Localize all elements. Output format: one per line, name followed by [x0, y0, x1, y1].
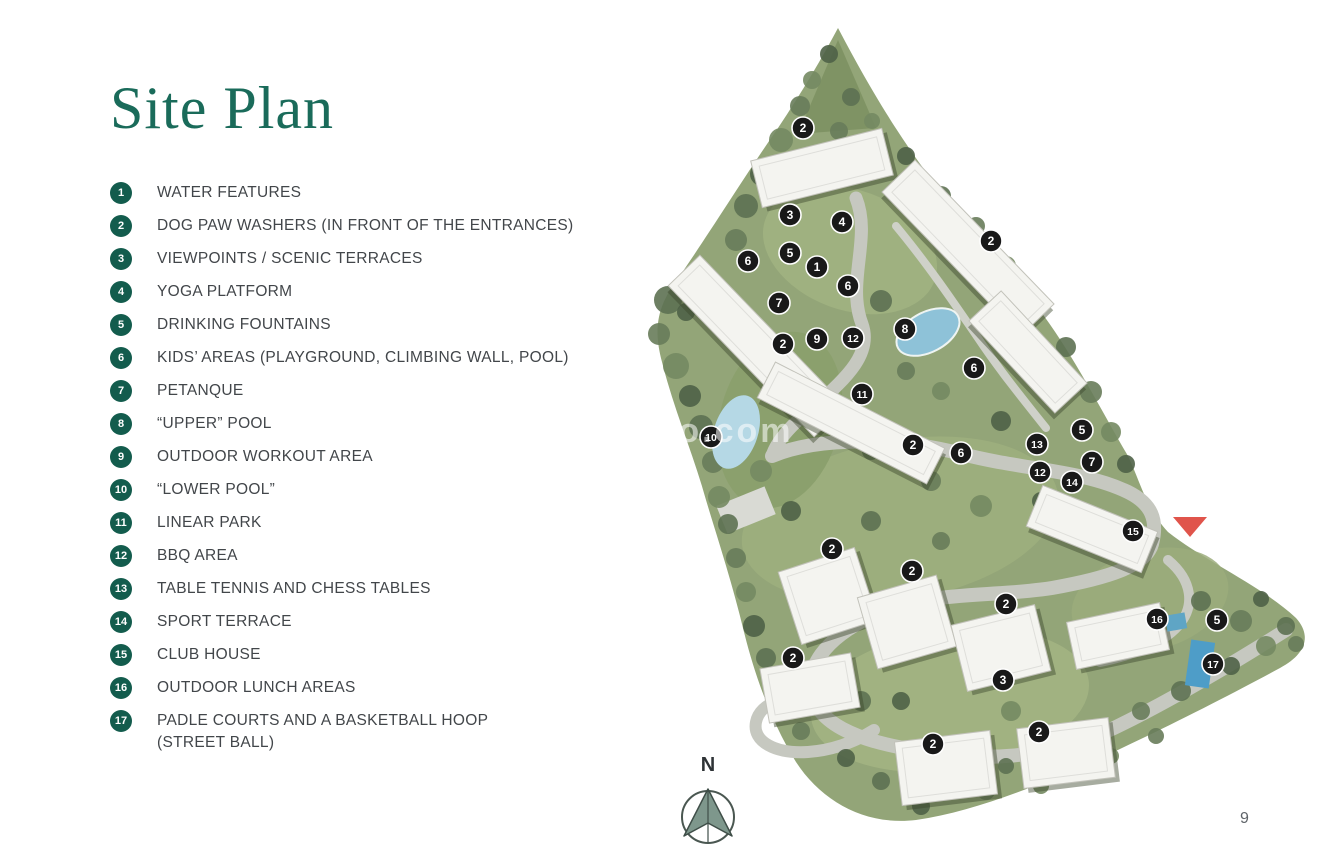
- svg-text:2: 2: [1003, 597, 1010, 611]
- map-marker-2: 2: [772, 333, 794, 355]
- map-marker-15: 15: [1122, 520, 1144, 542]
- svg-text:2: 2: [909, 564, 916, 578]
- svg-text:12: 12: [847, 333, 859, 345]
- legend-number-badge: 7: [110, 380, 132, 402]
- svg-text:2: 2: [910, 438, 917, 452]
- legend-item-14: 14SPORT TERRACE: [110, 611, 655, 633]
- north-compass: N: [668, 754, 748, 854]
- map-marker-2: 2: [922, 733, 944, 755]
- legend-item-label: DRINKING FOUNTAINS: [157, 314, 331, 336]
- svg-text:4: 4: [839, 215, 846, 229]
- legend-number-badge: 9: [110, 446, 132, 468]
- svg-text:17: 17: [1207, 659, 1219, 671]
- legend-item-label: VIEWPOINTS / SCENIC TERRACES: [157, 248, 423, 270]
- legend-item-label: BBQ AREA: [157, 545, 238, 567]
- svg-text:13: 13: [1031, 439, 1043, 451]
- svg-text:7: 7: [1089, 455, 1096, 469]
- legend-item-label: CLUB HOUSE: [157, 644, 261, 666]
- legend-item-label: OUTDOOR LUNCH AREAS: [157, 677, 356, 699]
- map-marker-13: 13: [1026, 433, 1048, 455]
- map-marker-6: 6: [737, 250, 759, 272]
- svg-text:14: 14: [1066, 477, 1078, 489]
- map-marker-16: 16: [1146, 608, 1168, 630]
- legend-number-badge: 3: [110, 248, 132, 270]
- svg-text:15: 15: [1127, 526, 1139, 538]
- map-marker-6: 6: [837, 275, 859, 297]
- legend-number-badge: 16: [110, 677, 132, 699]
- svg-text:2: 2: [988, 234, 995, 248]
- map-marker-2: 2: [792, 117, 814, 139]
- legend-item-10: 10“LOWER POOL”: [110, 479, 655, 501]
- map-marker-2: 2: [995, 593, 1017, 615]
- legend-number-badge: 12: [110, 545, 132, 567]
- legend-number-badge: 14: [110, 611, 132, 633]
- map-marker-2: 2: [821, 538, 843, 560]
- legend-item-8: 8“UPPER” POOL: [110, 413, 655, 435]
- svg-text:3: 3: [787, 208, 794, 222]
- svg-text:6: 6: [845, 279, 852, 293]
- map-marker-2: 2: [782, 647, 804, 669]
- svg-text:2: 2: [930, 737, 937, 751]
- legend-number-badge: 13: [110, 578, 132, 600]
- map-marker-14: 14: [1061, 471, 1083, 493]
- map-marker-2: 2: [901, 560, 923, 582]
- legend-item-1: 1WATER FEATURES: [110, 182, 655, 204]
- legend-item-label: KIDS’ AREAS (PLAYGROUND, CLIMBING WALL, …: [157, 347, 569, 369]
- map-marker-2: 2: [1028, 721, 1050, 743]
- legend-item-label: TABLE TENNIS AND CHESS TABLES: [157, 578, 431, 600]
- map-marker-11: 11: [851, 383, 873, 405]
- legend-item-15: 15CLUB HOUSE: [110, 644, 655, 666]
- svg-text:2: 2: [1036, 725, 1043, 739]
- legend: 1WATER FEATURES2DOG PAW WASHERS (IN FRON…: [110, 182, 655, 765]
- legend-item-13: 13TABLE TENNIS AND CHESS TABLES: [110, 578, 655, 600]
- legend-number-badge: 15: [110, 644, 132, 666]
- north-label: N: [668, 754, 748, 777]
- map-marker-4: 4: [831, 211, 853, 233]
- map-marker-5: 5: [1071, 419, 1093, 441]
- map-marker-5: 5: [1206, 609, 1228, 631]
- svg-text:6: 6: [958, 446, 965, 460]
- map-marker-12: 12: [842, 327, 864, 349]
- map-marker-5: 5: [779, 242, 801, 264]
- svg-text:16: 16: [1151, 614, 1163, 626]
- legend-item-label: LINEAR PARK: [157, 512, 262, 534]
- map-marker-2: 2: [980, 230, 1002, 252]
- legend-item-label: OUTDOOR WORKOUT AREA: [157, 446, 373, 468]
- legend-item-12: 12BBQ AREA: [110, 545, 655, 567]
- svg-text:9: 9: [814, 332, 821, 346]
- entrance-marker-icon: [1173, 517, 1207, 537]
- legend-item-5: 5DRINKING FOUNTAINS: [110, 314, 655, 336]
- svg-text:10: 10: [705, 432, 717, 444]
- legend-item-17: 17PADLE COURTS AND A BASKETBALL HOOP(STR…: [110, 710, 655, 754]
- svg-text:3: 3: [1000, 673, 1007, 687]
- site-plan-page: 2342561678129261151013267121415222165217…: [0, 0, 1320, 859]
- map-marker-17: 17: [1202, 653, 1224, 675]
- svg-text:12: 12: [1034, 467, 1046, 479]
- legend-item-label: YOGA PLATFORM: [157, 281, 292, 303]
- legend-item-6: 6KIDS’ AREAS (PLAYGROUND, CLIMBING WALL,…: [110, 347, 655, 369]
- legend-number-badge: 2: [110, 215, 132, 237]
- svg-text:8: 8: [902, 322, 909, 336]
- svg-text:5: 5: [787, 246, 794, 260]
- legend-item-9: 9OUTDOOR WORKOUT AREA: [110, 446, 655, 468]
- map-marker-3: 3: [779, 204, 801, 226]
- svg-text:2: 2: [829, 542, 836, 556]
- map-marker-7: 7: [768, 292, 790, 314]
- svg-text:2: 2: [780, 337, 787, 351]
- legend-item-label: “LOWER POOL”: [157, 479, 275, 501]
- map-marker-12: 12: [1029, 461, 1051, 483]
- map-marker-8: 8: [894, 318, 916, 340]
- svg-text:2: 2: [790, 651, 797, 665]
- map-marker-3: 3: [992, 669, 1014, 691]
- legend-number-badge: 8: [110, 413, 132, 435]
- legend-item-label: “UPPER” POOL: [157, 413, 272, 435]
- map-marker-7: 7: [1081, 451, 1103, 473]
- legend-number-badge: 17: [110, 710, 132, 732]
- map-marker-2: 2: [902, 434, 924, 456]
- page-number: 9: [1240, 810, 1249, 828]
- svg-text:7: 7: [776, 296, 783, 310]
- legend-number-badge: 1: [110, 182, 132, 204]
- page-title: Site Plan: [110, 74, 334, 143]
- legend-item-label: DOG PAW WASHERS (IN FRONT OF THE ENTRANC…: [157, 215, 574, 237]
- legend-item-4: 4YOGA PLATFORM: [110, 281, 655, 303]
- map-marker-10: 10: [700, 426, 722, 448]
- legend-item-7: 7PETANQUE: [110, 380, 655, 402]
- legend-number-badge: 10: [110, 479, 132, 501]
- compass-icon: [668, 779, 748, 849]
- legend-number-badge: 4: [110, 281, 132, 303]
- svg-text:2: 2: [800, 121, 807, 135]
- svg-text:6: 6: [971, 361, 978, 375]
- svg-text:1: 1: [814, 260, 821, 274]
- svg-text:11: 11: [856, 389, 867, 401]
- svg-text:5: 5: [1214, 613, 1221, 627]
- legend-item-3: 3VIEWPOINTS / SCENIC TERRACES: [110, 248, 655, 270]
- legend-number-badge: 11: [110, 512, 132, 534]
- legend-item-label: PETANQUE: [157, 380, 244, 402]
- legend-item-label: PADLE COURTS AND A BASKETBALL HOOP(STREE…: [157, 710, 488, 754]
- legend-item-label: WATER FEATURES: [157, 182, 301, 204]
- map-marker-9: 9: [806, 328, 828, 350]
- map-marker-1: 1: [806, 256, 828, 278]
- map-marker-6: 6: [950, 442, 972, 464]
- svg-text:6: 6: [745, 254, 752, 268]
- legend-item-2: 2DOG PAW WASHERS (IN FRONT OF THE ENTRAN…: [110, 215, 655, 237]
- legend-number-badge: 5: [110, 314, 132, 336]
- map-marker-6: 6: [963, 357, 985, 379]
- legend-item-label: SPORT TERRACE: [157, 611, 292, 633]
- legend-number-badge: 6: [110, 347, 132, 369]
- legend-item-16: 16OUTDOOR LUNCH AREAS: [110, 677, 655, 699]
- svg-text:5: 5: [1079, 423, 1086, 437]
- legend-item-11: 11LINEAR PARK: [110, 512, 655, 534]
